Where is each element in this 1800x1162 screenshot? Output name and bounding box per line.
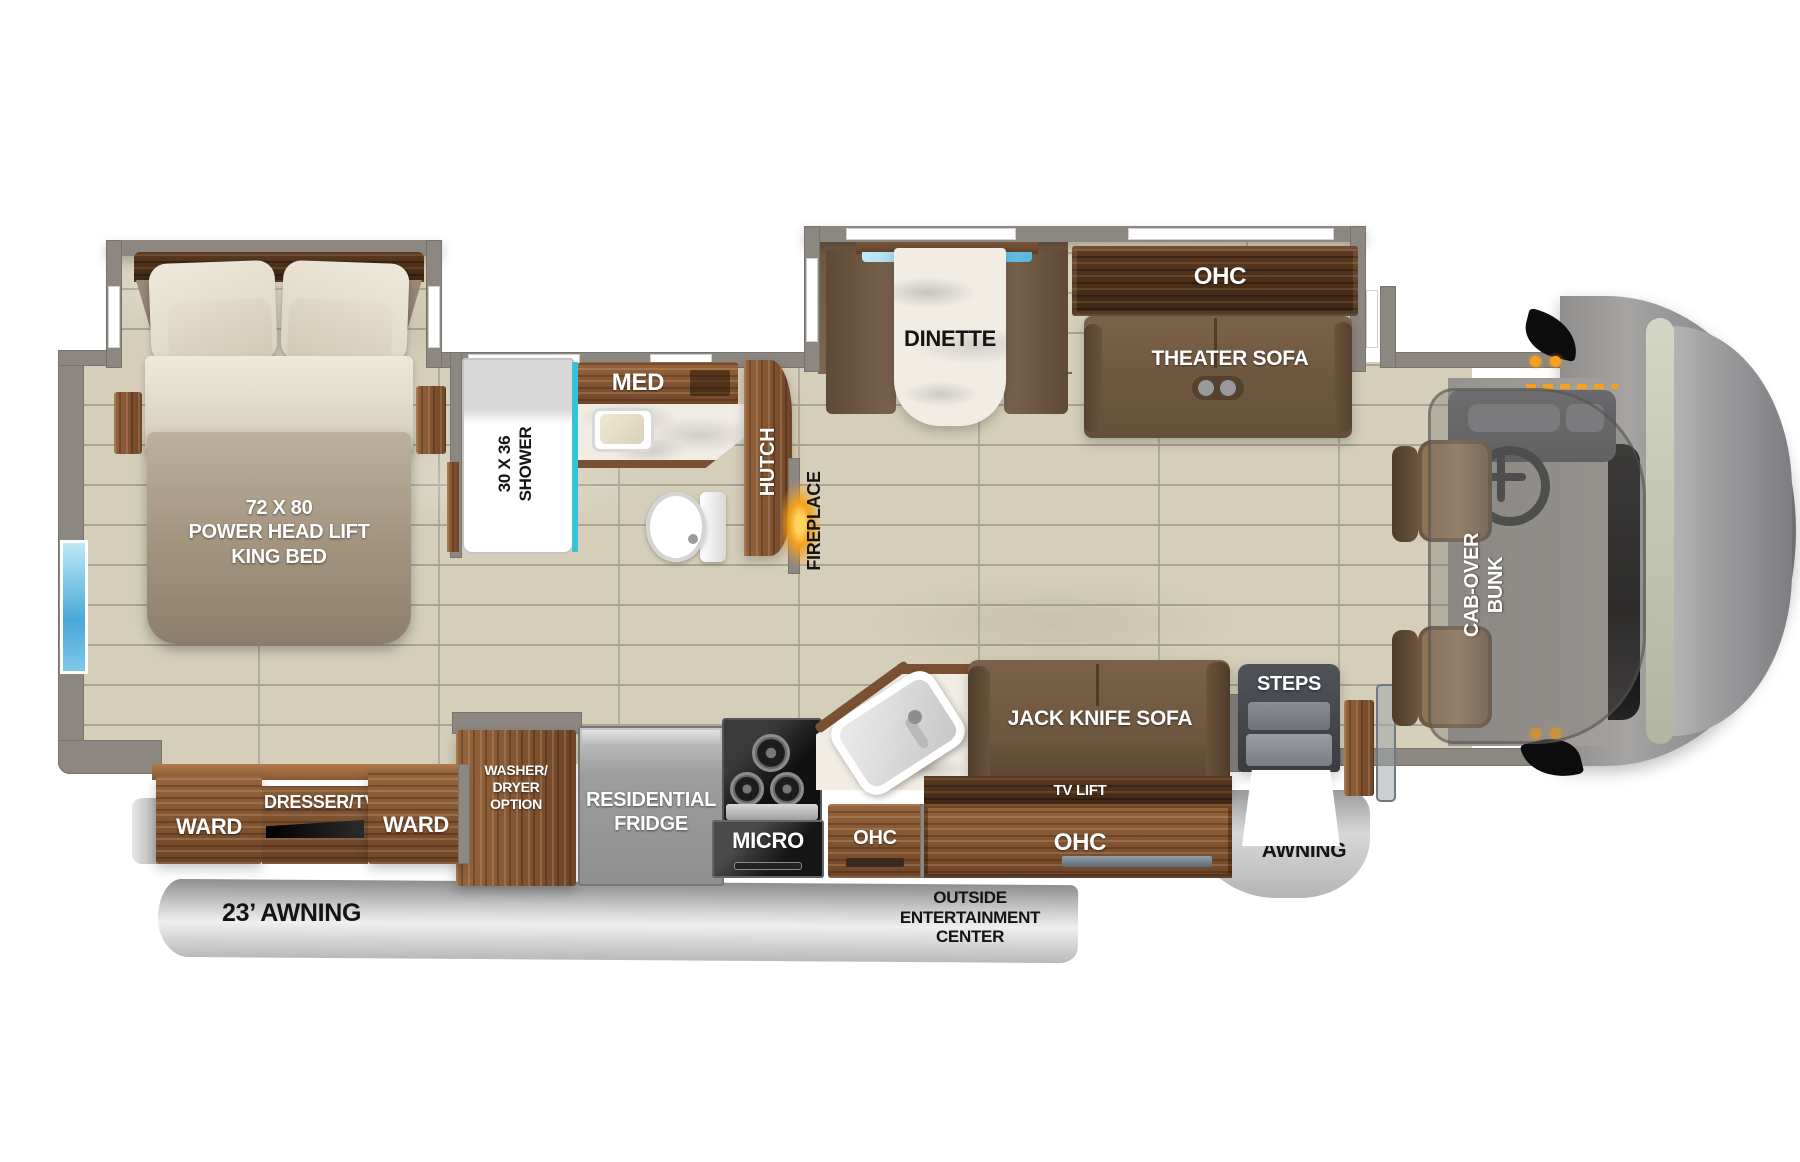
jack-sofa-arm-left <box>968 666 990 790</box>
dinette-window-left <box>806 258 818 342</box>
bottom-wall-left <box>58 740 162 774</box>
step-tread-1 <box>1248 702 1330 730</box>
windshield-band <box>1646 318 1674 744</box>
towel-ladder <box>447 462 459 552</box>
rv-floorplan: DOOR AWNING 23’ AWNING OUTSIDE ENTERTAIN… <box>0 0 1800 1162</box>
door-mat <box>1242 770 1340 846</box>
theater-sofa-arm-left <box>1084 324 1102 432</box>
ward-slide-divider <box>458 764 470 864</box>
theater-sofa-arm-right <box>1334 322 1352 432</box>
hood <box>1672 326 1792 736</box>
ward-left <box>156 776 262 864</box>
jack-sofa-back-seam <box>1096 664 1099 706</box>
stove-burner-2 <box>730 772 764 806</box>
med-cabinet-recess <box>690 370 730 396</box>
dinette-bench-right <box>1004 250 1068 414</box>
marker-light-top-1 <box>1530 356 1541 367</box>
rear-bumper-cap <box>132 798 158 864</box>
theater-sofa-seam <box>1214 318 1217 368</box>
micro-handle <box>734 862 802 870</box>
tv-lift-strip <box>924 776 1232 806</box>
main-awning <box>158 879 1079 963</box>
bedroom-window-left <box>108 286 120 348</box>
fridge <box>578 726 724 886</box>
nightstand-right <box>416 386 446 454</box>
bedroom-window-right <box>428 286 440 348</box>
vanity-basin <box>600 414 644 444</box>
dinette-window-top <box>846 228 1016 240</box>
toilet-flush <box>688 534 698 544</box>
step-tread-2 <box>1246 734 1332 766</box>
washer-dryer-cabinet <box>456 730 576 886</box>
jack-sofa-arm-right <box>1206 662 1230 792</box>
theater-cupholder-2 <box>1220 380 1236 396</box>
theater-ohc <box>1072 246 1358 316</box>
theater-cupholder-1 <box>1198 380 1214 396</box>
bed-blanket <box>147 432 411 644</box>
sofa-ohc-sill <box>1062 856 1212 867</box>
ward-right <box>368 772 464 864</box>
rear-window <box>60 540 88 674</box>
stove-oven-bar <box>726 804 818 820</box>
cab-corner-wall <box>1380 286 1396 368</box>
marker-light-top-2 <box>1550 356 1561 367</box>
nightstand-left <box>114 392 142 454</box>
dinette-table <box>894 248 1006 426</box>
cab-corner-window <box>1366 290 1378 348</box>
driver-seat-back <box>1392 446 1418 542</box>
shower <box>462 358 574 554</box>
cab-over-bunk-outline <box>1428 388 1646 744</box>
entry-cabinet <box>1344 700 1374 796</box>
fridge-top-band <box>582 730 720 744</box>
theater-window-top <box>1128 228 1334 240</box>
dinette-bench-left <box>826 250 896 414</box>
stove-burner-1 <box>752 734 790 772</box>
kitchen-faucet-base <box>908 710 922 724</box>
passenger-seat-back <box>1392 630 1418 726</box>
fireplace-glow <box>782 466 842 582</box>
stove-burner-3 <box>770 772 804 806</box>
toilet-bowl <box>646 492 706 562</box>
galley-ohc-sill <box>846 858 904 867</box>
